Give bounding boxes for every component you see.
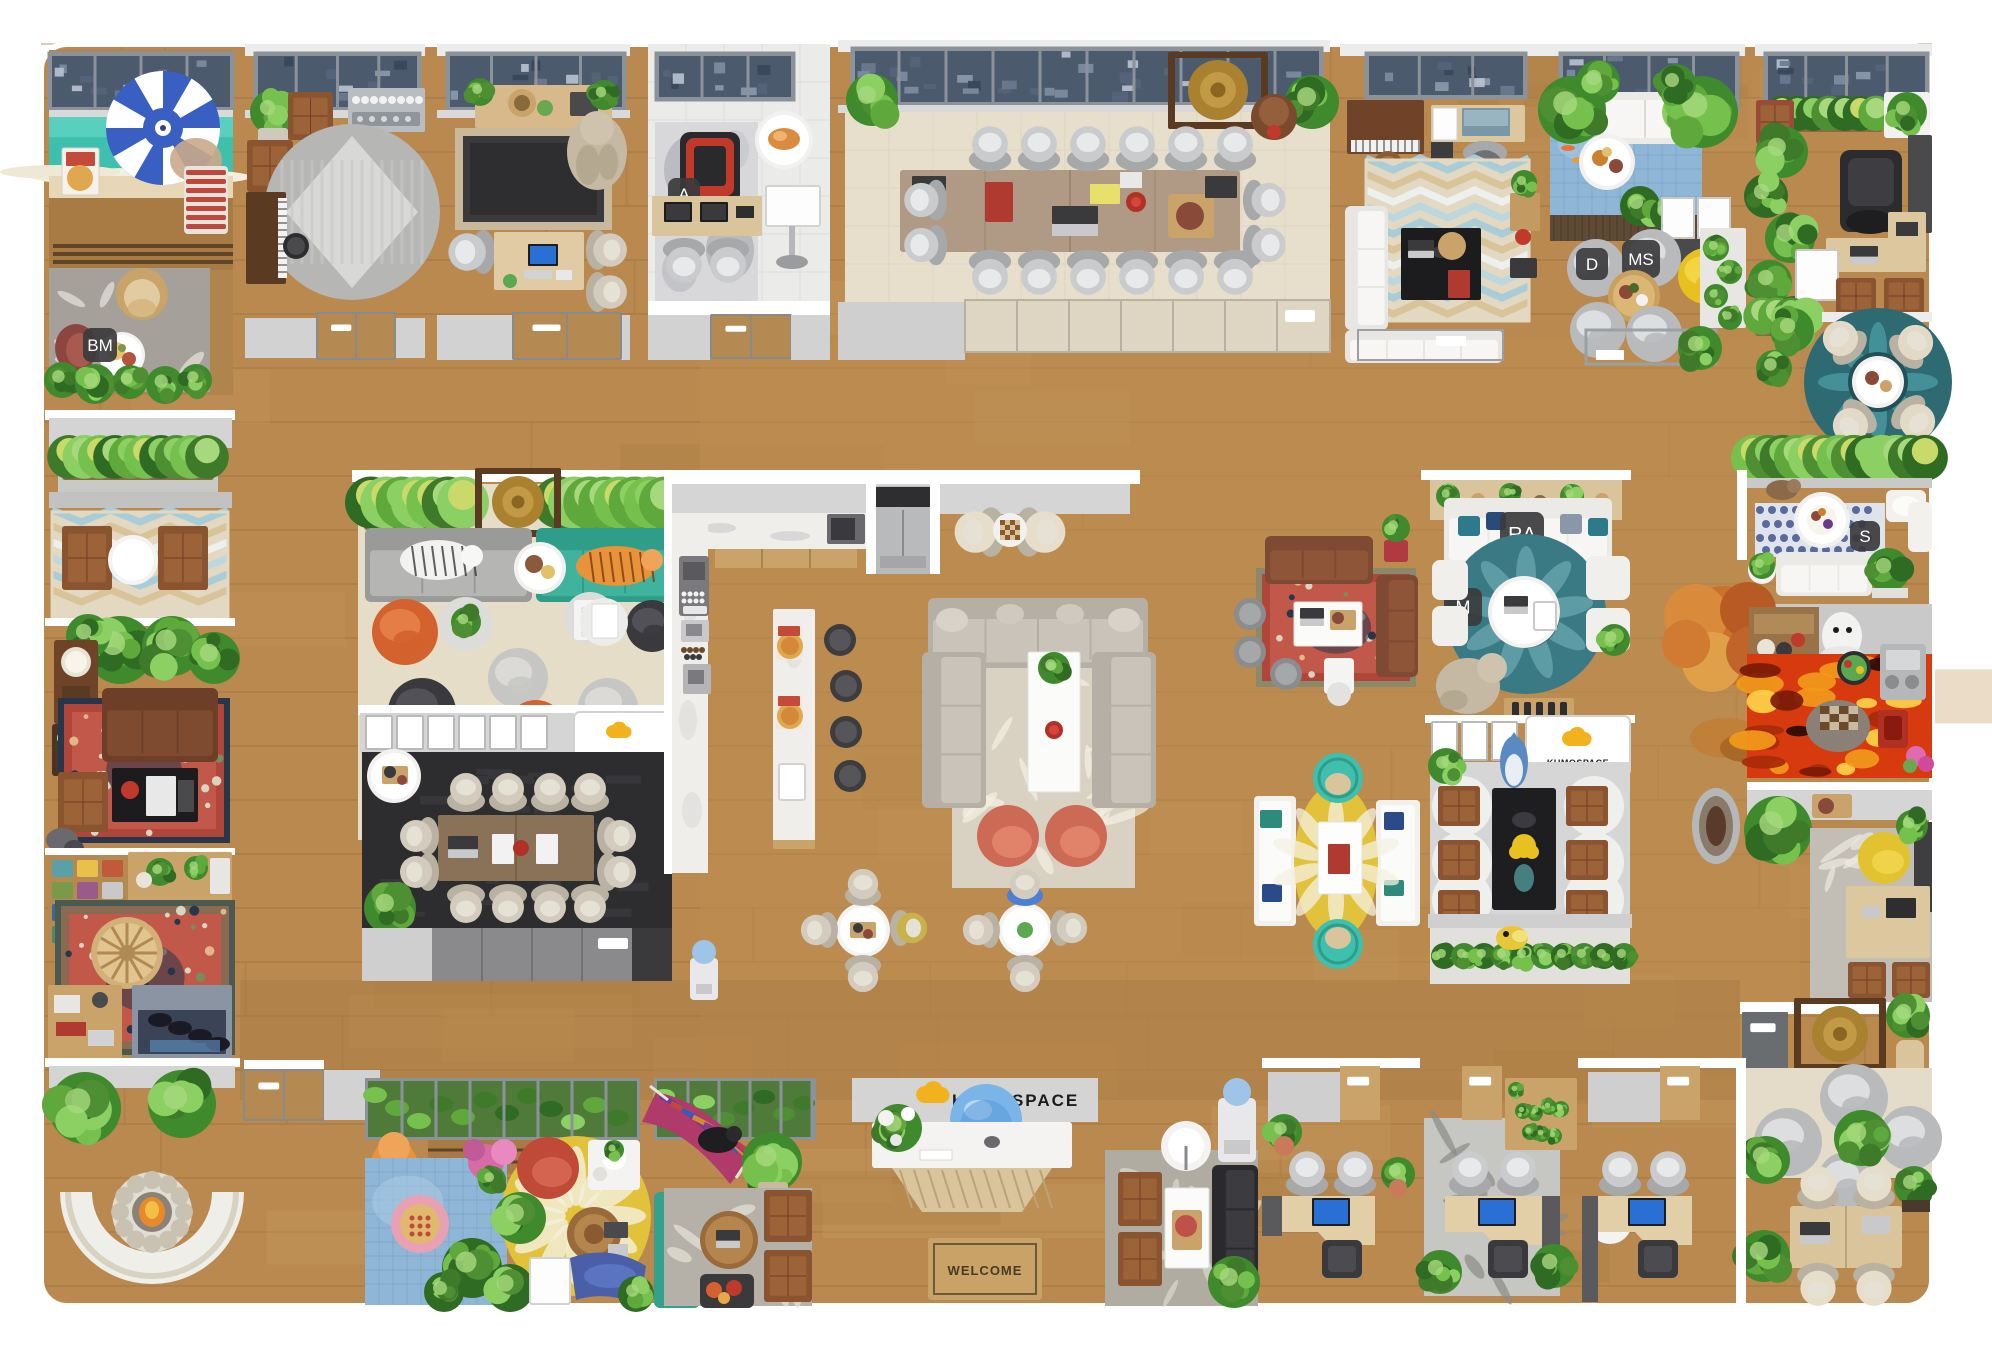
- svg-text:WELCOME: WELCOME: [948, 1263, 1023, 1278]
- svg-text:MS: MS: [1628, 250, 1654, 269]
- svg-text:S: S: [1859, 527, 1870, 546]
- svg-text:BM: BM: [87, 336, 113, 355]
- svg-text:D: D: [1586, 255, 1598, 274]
